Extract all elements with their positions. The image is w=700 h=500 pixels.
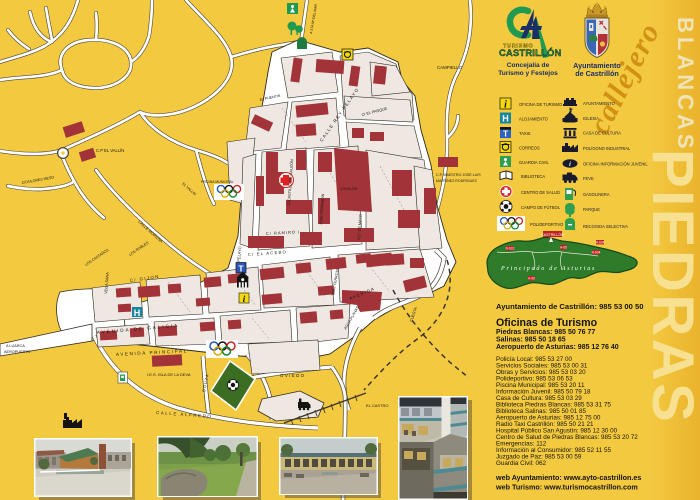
svg-text:A-66: A-66 — [560, 246, 567, 250]
svg-text:PIEDRAS: PIEDRAS — [640, 149, 700, 424]
svg-text:MARTÍNEZ RODRÍGUEZ: MARTÍNEZ RODRÍGUEZ — [436, 179, 478, 183]
svg-text:BLANCAS: BLANCAS — [673, 17, 698, 153]
svg-text:TAXIS: TAXIS — [519, 131, 531, 136]
svg-text:PARQUE: PARQUE — [583, 207, 600, 212]
svg-text:OFICINA DE TURISMO: OFICINA DE TURISMO — [519, 102, 562, 107]
svg-text:BIBLIOTECA: BIBLIOTECA — [521, 174, 545, 179]
svg-text:i: i — [504, 100, 507, 111]
svg-text:FEVE: FEVE — [583, 176, 594, 181]
svg-text:OVIEDO: OVIEDO — [280, 373, 305, 378]
svg-text:POLÍGONO INDUSTRIAL: POLÍGONO INDUSTRIAL — [583, 146, 631, 151]
svg-text:A LUARCA: A LUARCA — [6, 344, 25, 348]
svg-text:CASTRILLÓN: CASTRILLÓN — [499, 47, 561, 58]
svg-text:CASTRILLÓN: CASTRILLÓN — [541, 232, 564, 237]
svg-text:Salinas: 985 50 18 65: Salinas: 985 50 18 65 — [496, 337, 566, 344]
svg-text:EL CASTRO: EL CASTRO — [366, 403, 389, 408]
svg-text:de Castrillón: de Castrillón — [575, 69, 619, 78]
svg-text:OFICINA INFORMACIÓN JUVENIL: OFICINA INFORMACIÓN JUVENIL — [583, 162, 648, 167]
svg-text:Ayuntamiento de Castrillón: 98: Ayuntamiento de Castrillón: 985 53 00 50 — [496, 302, 643, 311]
svg-text:Oficinas de Turismo: Oficinas de Turismo — [496, 317, 598, 329]
svg-text:N-634: N-634 — [596, 241, 605, 245]
svg-text:CENTRO DE SALUD: CENTRO DE SALUD — [521, 190, 560, 195]
svg-text:Principado de Asturias: Principado de Asturias — [500, 266, 596, 272]
svg-text:Guardia Civil: 062: Guardia Civil: 062 — [496, 460, 547, 467]
svg-text:H: H — [502, 114, 509, 124]
svg-text:CORREOS: CORREOS — [519, 146, 540, 151]
svg-text:Turismo y Festejos: Turismo y Festejos — [498, 70, 558, 77]
svg-text:GUARDIA CIVIL: GUARDIA CIVIL — [519, 160, 550, 165]
svg-text:IGLESIA: IGLESIA — [583, 116, 599, 121]
svg-text:CASA DE CULTURA: CASA DE CULTURA — [583, 131, 621, 136]
svg-text:web Ayuntamiento: www.ayto-cas: web Ayuntamiento: www.ayto-castrillon.es — [495, 473, 641, 482]
svg-text:Concejalía de: Concejalía de — [507, 62, 550, 69]
svg-text:GASOLINERA: GASOLINERA — [583, 192, 610, 197]
svg-text:web Turismo: www.turismocastri: web Turismo: www.turismocastrillon.com — [495, 483, 638, 492]
svg-text:I.E.S. ISLA DE LA DEVA: I.E.S. ISLA DE LA DEVA — [147, 372, 191, 377]
svg-text:RECOGIDA SELECTIVA: RECOGIDA SELECTIVA — [583, 224, 628, 229]
svg-text:H: H — [134, 308, 141, 318]
svg-text:A-66: A-66 — [528, 277, 535, 281]
svg-text:C.P. MAESTRO JOSÉ LUIS: C.P. MAESTRO JOSÉ LUIS — [436, 172, 481, 177]
svg-text:AYUNTAMIENTO: AYUNTAMIENTO — [583, 101, 615, 106]
svg-text:N-634: N-634 — [592, 251, 601, 255]
svg-text:AEROPUERTO: AEROPUERTO — [4, 350, 30, 354]
svg-text:C/IYALÓN: C/IYALÓN — [340, 186, 358, 191]
svg-text:CAMPIELLO: CAMPIELLO — [437, 65, 463, 70]
svg-text:Aeropuerto de Asturias: 985 12: Aeropuerto de Asturias: 985 12 76 40 — [496, 344, 619, 351]
svg-text:PISCINA MUNICIPAL: PISCINA MUNICIPAL — [201, 180, 234, 184]
svg-text:ALOJAMIENTO: ALOJAMIENTO — [519, 117, 548, 122]
svg-text:T: T — [238, 264, 244, 274]
svg-text:C.P EL VALLÍN: C.P EL VALLÍN — [96, 148, 124, 153]
svg-text:N-632: N-632 — [506, 247, 515, 251]
svg-text:Piedras Blancas: 985 50 76 77: Piedras Blancas: 985 50 76 77 — [496, 329, 595, 336]
svg-text:T: T — [503, 129, 509, 139]
svg-text:POLIDEPORTIVO: POLIDEPORTIVO — [530, 222, 563, 227]
svg-text:CAMPO DE FÚTBOL: CAMPO DE FÚTBOL — [521, 205, 561, 210]
